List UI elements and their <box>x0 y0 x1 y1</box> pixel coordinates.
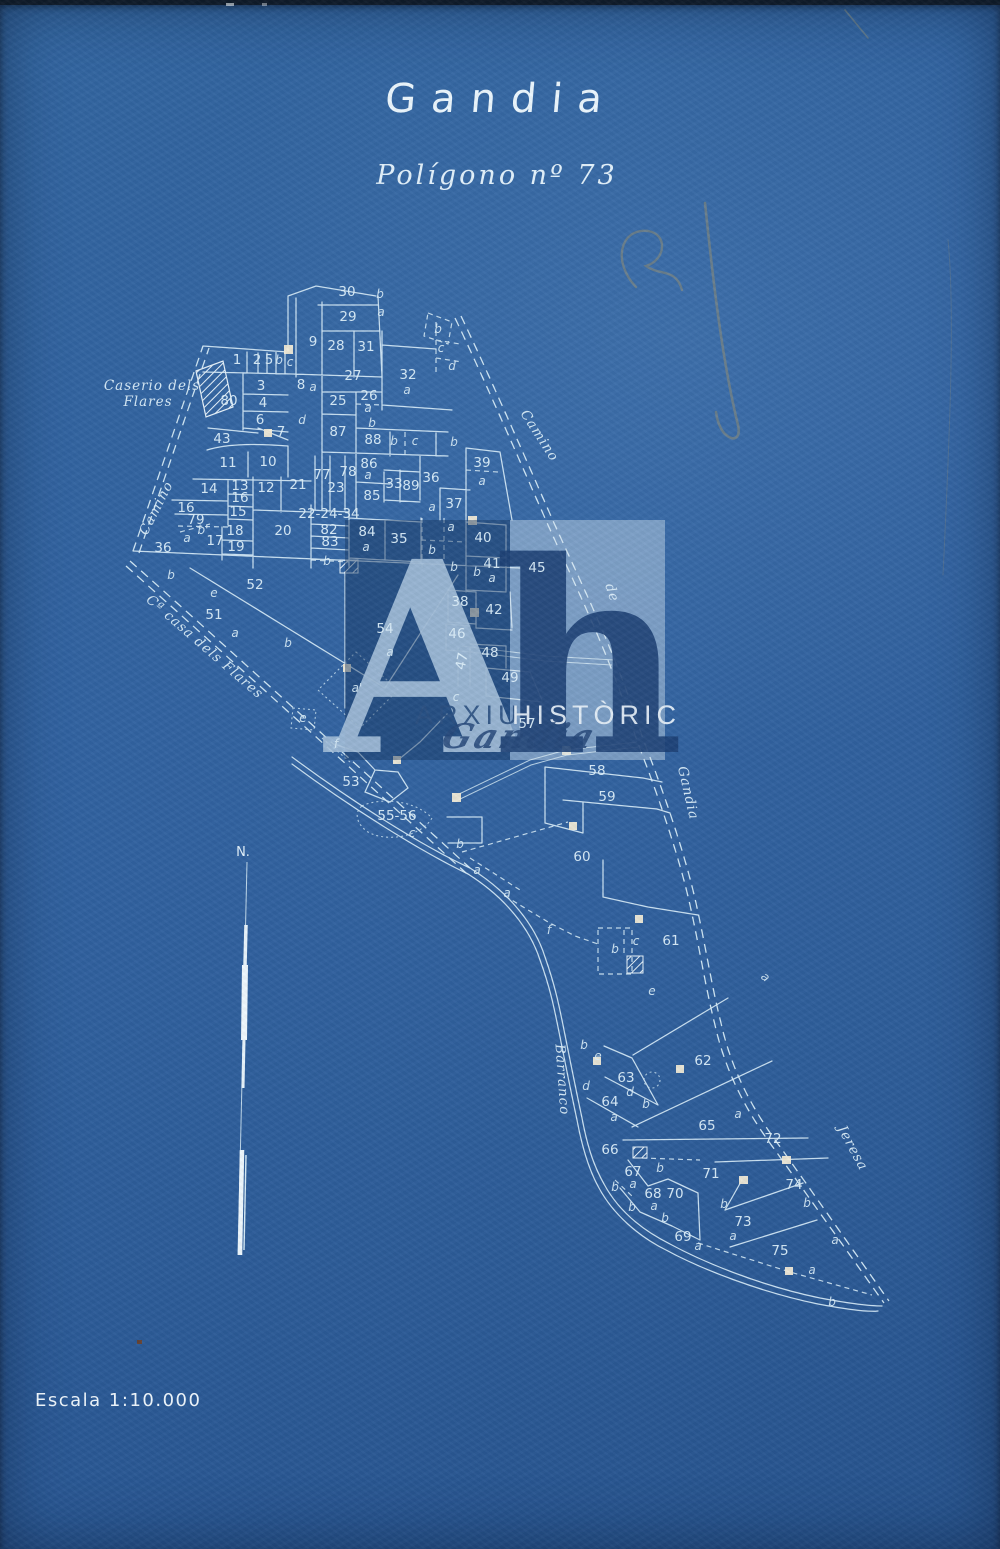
parcel-number-label: 12 <box>257 480 274 496</box>
parcel-number-label: 62 <box>694 1053 711 1069</box>
parcel-letter-label: c <box>409 826 416 840</box>
parcel-number-label: 20 <box>274 523 291 539</box>
map-canvas: A h ARXIU HISTÒRIC Gandia 12534678910111… <box>0 0 1000 1549</box>
parcel-number-label: 84 <box>358 524 375 540</box>
parcel-number-label: 49 <box>501 670 518 686</box>
parcel-number-label: 5 <box>265 352 274 368</box>
parcel-letter-label: a' <box>352 681 363 695</box>
parcel-number-label: 43 <box>213 431 230 447</box>
parcel-number-label: 6 <box>256 412 265 428</box>
parcel-letter-label: a <box>650 1199 657 1213</box>
parcel-letter-label: b <box>628 1200 636 1214</box>
parcel-number-label: 88 <box>364 432 381 448</box>
parcel-number-label: 45 <box>528 560 545 576</box>
parcel-letter-label: b <box>376 287 384 301</box>
parcel-number-label: 4 <box>259 395 268 411</box>
parcel-letter-label: b <box>434 322 442 336</box>
parcel-letter-label: d <box>298 413 306 427</box>
parcel-number-label: 77 <box>313 467 330 483</box>
parcel-letter-label: a <box>364 401 371 415</box>
scale-label: Escala 1:10.000 <box>35 1390 201 1411</box>
parcel-number-label: 11 <box>219 455 236 471</box>
parcel-number-label: 83 <box>321 534 338 550</box>
parcel-number-label: 89 <box>402 478 419 494</box>
parcel-number-label: 87 <box>329 424 346 440</box>
parcel-number-label: 58 <box>588 763 605 779</box>
parcel-letter-label: c <box>453 690 460 704</box>
parcel-number-label: 10 <box>259 454 276 470</box>
parcel-number-label: 18 <box>226 523 243 539</box>
parcel-number-label: 7 <box>277 424 286 440</box>
parcel-letter-label: b' <box>198 523 209 537</box>
parcel-number-label: 74 <box>785 1177 802 1193</box>
parcel-letter-label: a <box>309 380 316 394</box>
parcel-number-label: 2 <box>253 352 262 368</box>
dotted-circle <box>644 1072 660 1088</box>
parcel-letter-label: b <box>473 565 481 579</box>
hatched-building <box>633 1147 647 1158</box>
parcel-number-label: 57 <box>518 716 535 732</box>
parcel-number-label: 53 <box>342 774 359 790</box>
parcel-number-label: 36 <box>154 540 171 556</box>
parcel-number-label: 38 <box>451 594 468 610</box>
parcel-letter-label: b <box>167 568 175 582</box>
parcel-letter-label: a <box>831 1233 838 1247</box>
parcel-number-label: 63 <box>617 1070 634 1086</box>
parcel-number-label: 21 <box>289 477 306 493</box>
parcel-letter-label: e <box>210 586 217 600</box>
watermark: A h ARXIU HISTÒRIC Gandia <box>321 504 684 815</box>
parcel-number-label: 1 <box>233 352 242 368</box>
parcel-letter-label: c <box>633 934 640 948</box>
parcel-letter-label: a <box>364 468 371 482</box>
parcel-number-label: 59 <box>598 789 615 805</box>
parcel-letter-label: b <box>456 837 464 851</box>
parcel-letter-label: a <box>231 626 238 640</box>
parcel-number-label: 17 <box>206 533 223 549</box>
parcel-letter-label: b <box>284 636 292 650</box>
parcel-letter-label: b <box>450 560 458 574</box>
parcel-number-label: 28 <box>327 338 344 354</box>
parcel-number-label: 65 <box>698 1118 715 1134</box>
barranco-line <box>292 757 882 1311</box>
parcel-letter-label: a <box>758 969 773 984</box>
parcel-number-label: 66 <box>601 1142 618 1158</box>
parcel-letter-label: a <box>403 383 410 397</box>
parcel-letter-label: a <box>694 1239 701 1253</box>
parcel-number-label: 69 <box>674 1229 691 1245</box>
parcel-number-label: 46 <box>448 626 465 642</box>
parcel-number-label: 42 <box>485 602 502 618</box>
building-square <box>284 345 293 354</box>
parcel-number-label: 41 <box>483 556 500 572</box>
parcel-number-label: 40 <box>474 530 491 546</box>
parcel-number-label: 19 <box>227 539 244 555</box>
pencil-loop <box>622 231 682 290</box>
parcel-letter-label: e <box>648 984 655 998</box>
pencil-corner-tick <box>845 10 868 38</box>
parcel-letter-label: b <box>642 1097 650 1111</box>
building-square <box>785 1267 793 1275</box>
map-subtitle: Polígono nº 73 <box>375 160 617 191</box>
parcel-number-label: 32 <box>399 367 416 383</box>
blueprint-sheet: A h ARXIU HISTÒRIC Gandia 12534678910111… <box>0 0 1000 1549</box>
parcel-number-label: 35 <box>390 531 407 547</box>
building-square <box>635 915 643 923</box>
parcel-number-label: 78 <box>339 464 356 480</box>
parcel-number-label: 25 <box>329 393 346 409</box>
parcel-number-label: 22-24-34 <box>298 506 359 522</box>
parcel-letter-label: b <box>720 1197 728 1211</box>
parcel-letter-label: b <box>368 416 376 430</box>
parcel-letter-label: b <box>611 942 619 956</box>
parcel-number-label: 36 <box>422 470 439 486</box>
parcel-letter-label: b <box>656 1161 664 1175</box>
parcel-number-label: 15 <box>229 504 246 520</box>
parcel-number-label: 60 <box>573 849 590 865</box>
parcel-letter-label: e <box>594 1049 601 1063</box>
parcel-number-label: 72 <box>764 1131 781 1147</box>
parcel-letter-label: b <box>803 1196 811 1210</box>
parcel-number-label: 80 <box>220 393 237 409</box>
parcel-letter-label: a <box>808 1263 815 1277</box>
parcel-letter-label: a <box>473 863 480 877</box>
parcel-letter-label: e <box>299 711 306 725</box>
parcel-number-label: 37 <box>445 496 462 512</box>
parcel-number-label: 29 <box>339 309 356 325</box>
parcel-number-label: 54 <box>376 621 393 637</box>
parcel-number-label: 16 <box>231 490 248 506</box>
parcel-number-label: 9 <box>309 334 318 350</box>
map-title: Gandia <box>383 76 619 122</box>
parcel-letter-label: b <box>450 435 458 449</box>
place-label: Flares <box>122 394 172 410</box>
building-square <box>676 1065 684 1073</box>
parcel-number-label: 48 <box>481 645 498 661</box>
parcel-number-label: 31 <box>357 339 374 355</box>
parcel-letter-label: a <box>447 520 454 534</box>
pencil-stroke <box>705 203 739 438</box>
parcel-letter-label: a <box>629 1177 636 1191</box>
parcel-letter-label: a <box>610 1110 617 1124</box>
parcel-letter-label: a <box>428 500 435 514</box>
parcel-number-label: 8 <box>297 377 306 393</box>
parcel-letter-label: c <box>412 434 419 448</box>
parcel-letter-label: b <box>580 1038 588 1052</box>
parcel-number-label: 61 <box>662 933 679 949</box>
north-arrow: N. <box>236 845 250 1255</box>
parcel-number-label: 52 <box>246 577 263 593</box>
parcel-letter-label: b <box>611 1180 619 1194</box>
parcel-number-label: 71 <box>702 1166 719 1182</box>
parcel-letter-label: a <box>734 1107 741 1121</box>
parcel-number-label: 14 <box>200 481 217 497</box>
parcel-letter-label: a <box>377 305 384 319</box>
parcel-letter-label: a <box>729 1229 736 1243</box>
parcel-letter-label: a <box>478 474 485 488</box>
parcel-number-label: 27 <box>344 368 361 384</box>
building-square <box>569 822 577 830</box>
parcel-letter-label: a <box>488 571 495 585</box>
north-label: N. <box>236 845 250 860</box>
hatched-building <box>627 956 643 973</box>
parcel-number-label: 55-56 <box>377 808 416 824</box>
parcel-letter-label: b <box>390 434 398 448</box>
parcel-number-label: 3 <box>257 378 266 394</box>
parcel-letter-label: a <box>503 886 510 900</box>
parcel-number-label: 51 <box>205 607 222 623</box>
parcel-number-label: 30 <box>338 284 355 300</box>
building-square <box>739 1176 748 1184</box>
parcel-letter-label: b <box>828 1295 836 1309</box>
parcel-letter-label: a <box>183 531 190 545</box>
place-label: Jeresa <box>833 1120 871 1173</box>
parcel-number-label: 70 <box>666 1186 683 1202</box>
parcel-letter-label: a <box>386 645 393 659</box>
parcel-letter-label: b <box>661 1211 669 1225</box>
parcel-letter-label: b <box>275 353 283 367</box>
parcel-number-label: 73 <box>734 1214 751 1230</box>
parcel-letter-label: b <box>323 554 331 568</box>
parcel-letter-label: c <box>438 341 445 355</box>
place-label: Camino <box>517 407 562 465</box>
parcel-number-label: 39 <box>473 455 490 471</box>
parcel-letter-label: d <box>626 1085 634 1099</box>
parcel-number-label: 85 <box>363 488 380 504</box>
parcel-letter-label: b <box>428 543 436 557</box>
parcel-letter-label: c <box>287 355 294 369</box>
parcel-number-label: 75 <box>771 1243 788 1259</box>
parcel-letter-label: f <box>547 923 553 937</box>
place-label: Caserio dels <box>104 378 200 394</box>
pencil-marks <box>622 10 868 438</box>
parcel-number-label: 33 <box>385 476 402 492</box>
parcel-letter-label: d <box>582 1079 590 1093</box>
parcel-letter-label: d <box>448 359 456 373</box>
parcel-letter-label: a <box>362 540 369 554</box>
parcel-number-label: 64 <box>601 1094 618 1110</box>
place-label: Camino <box>136 479 177 538</box>
building-square <box>264 429 272 437</box>
building-square <box>782 1156 791 1164</box>
